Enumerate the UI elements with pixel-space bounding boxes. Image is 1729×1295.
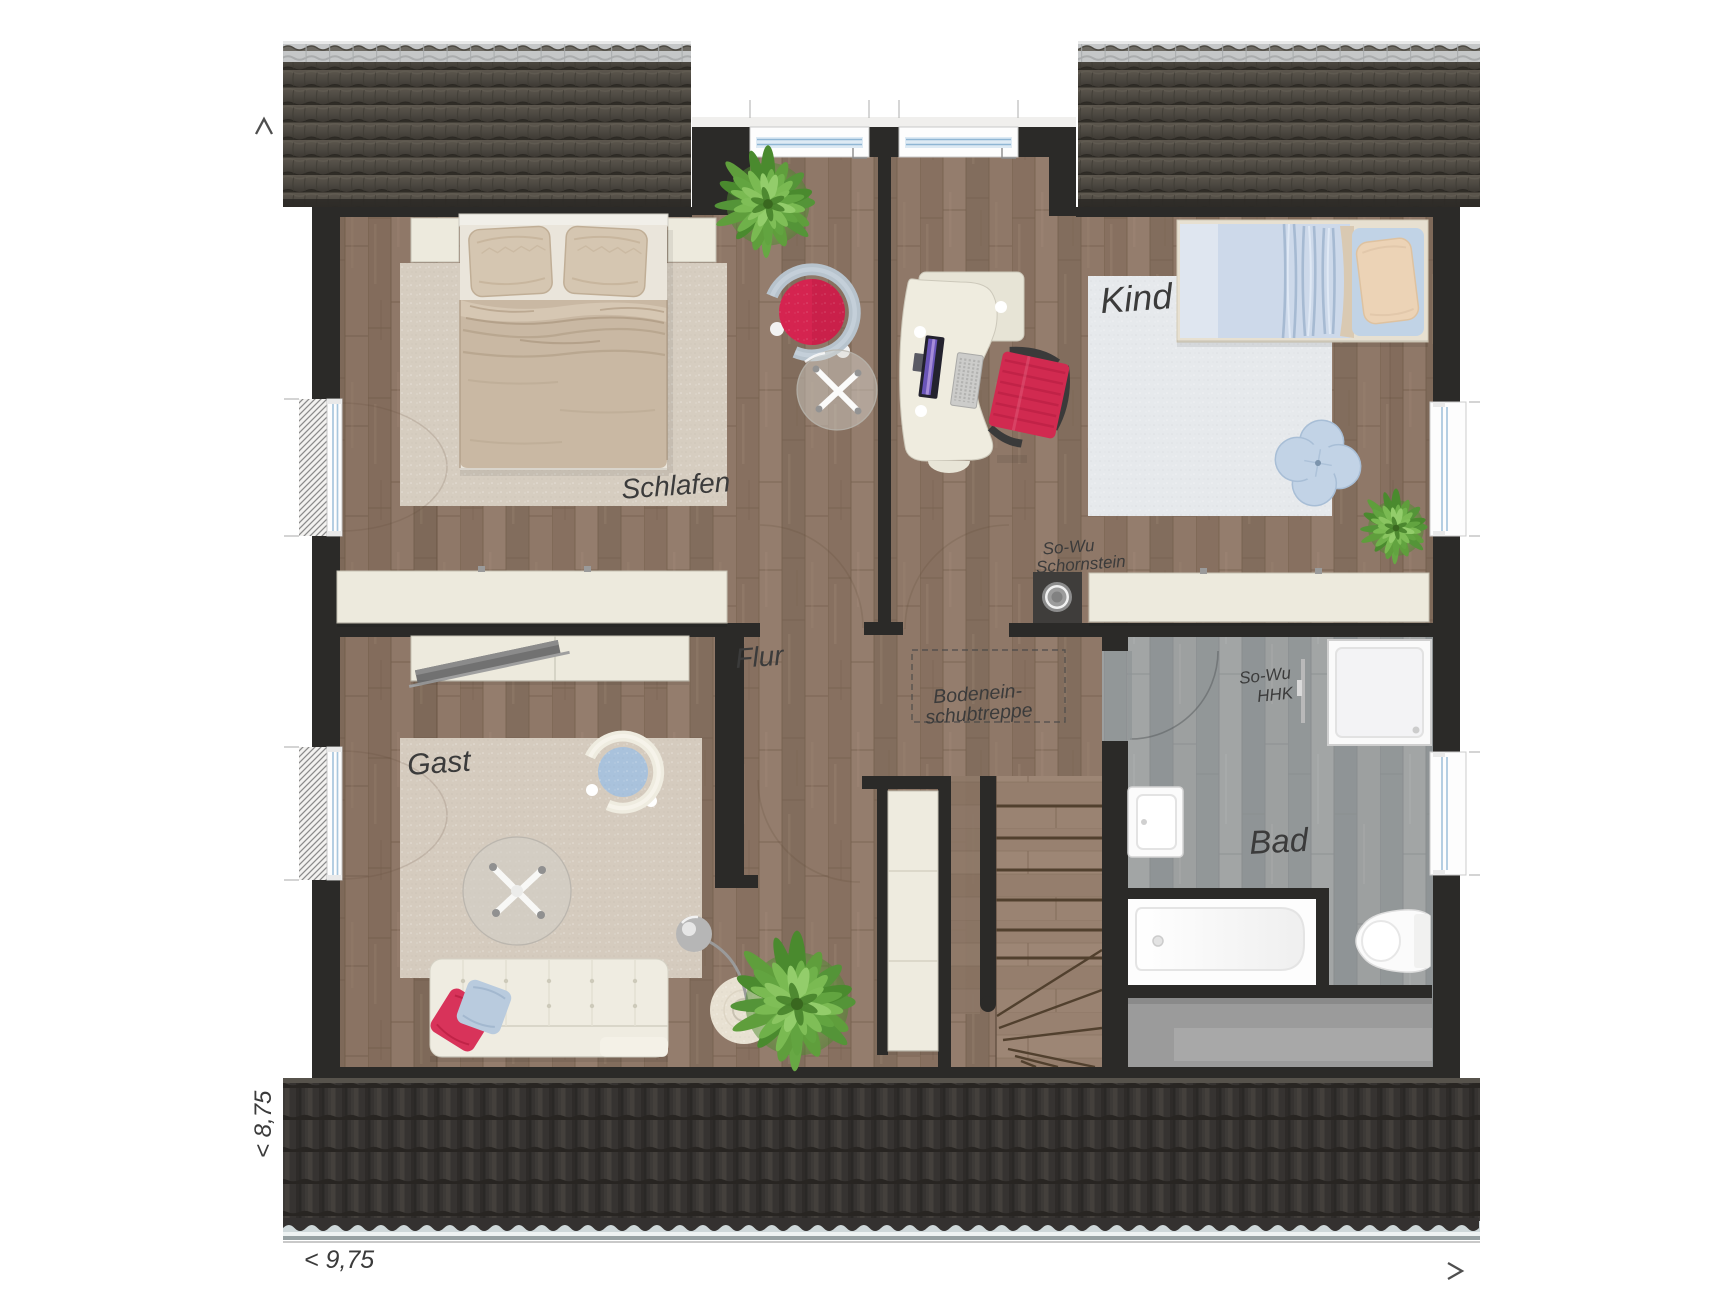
svg-text:Kind: Kind [1099,275,1175,321]
svg-text:< 9,75: < 9,75 [304,1246,374,1274]
svg-text:Flur: Flur [734,640,786,674]
svg-text:< 8,75: < 8,75 [250,1090,277,1158]
svg-text:Bad: Bad [1248,821,1310,861]
svg-text:Gast: Gast [406,745,473,782]
svg-text:HHK: HHK [1256,683,1294,706]
